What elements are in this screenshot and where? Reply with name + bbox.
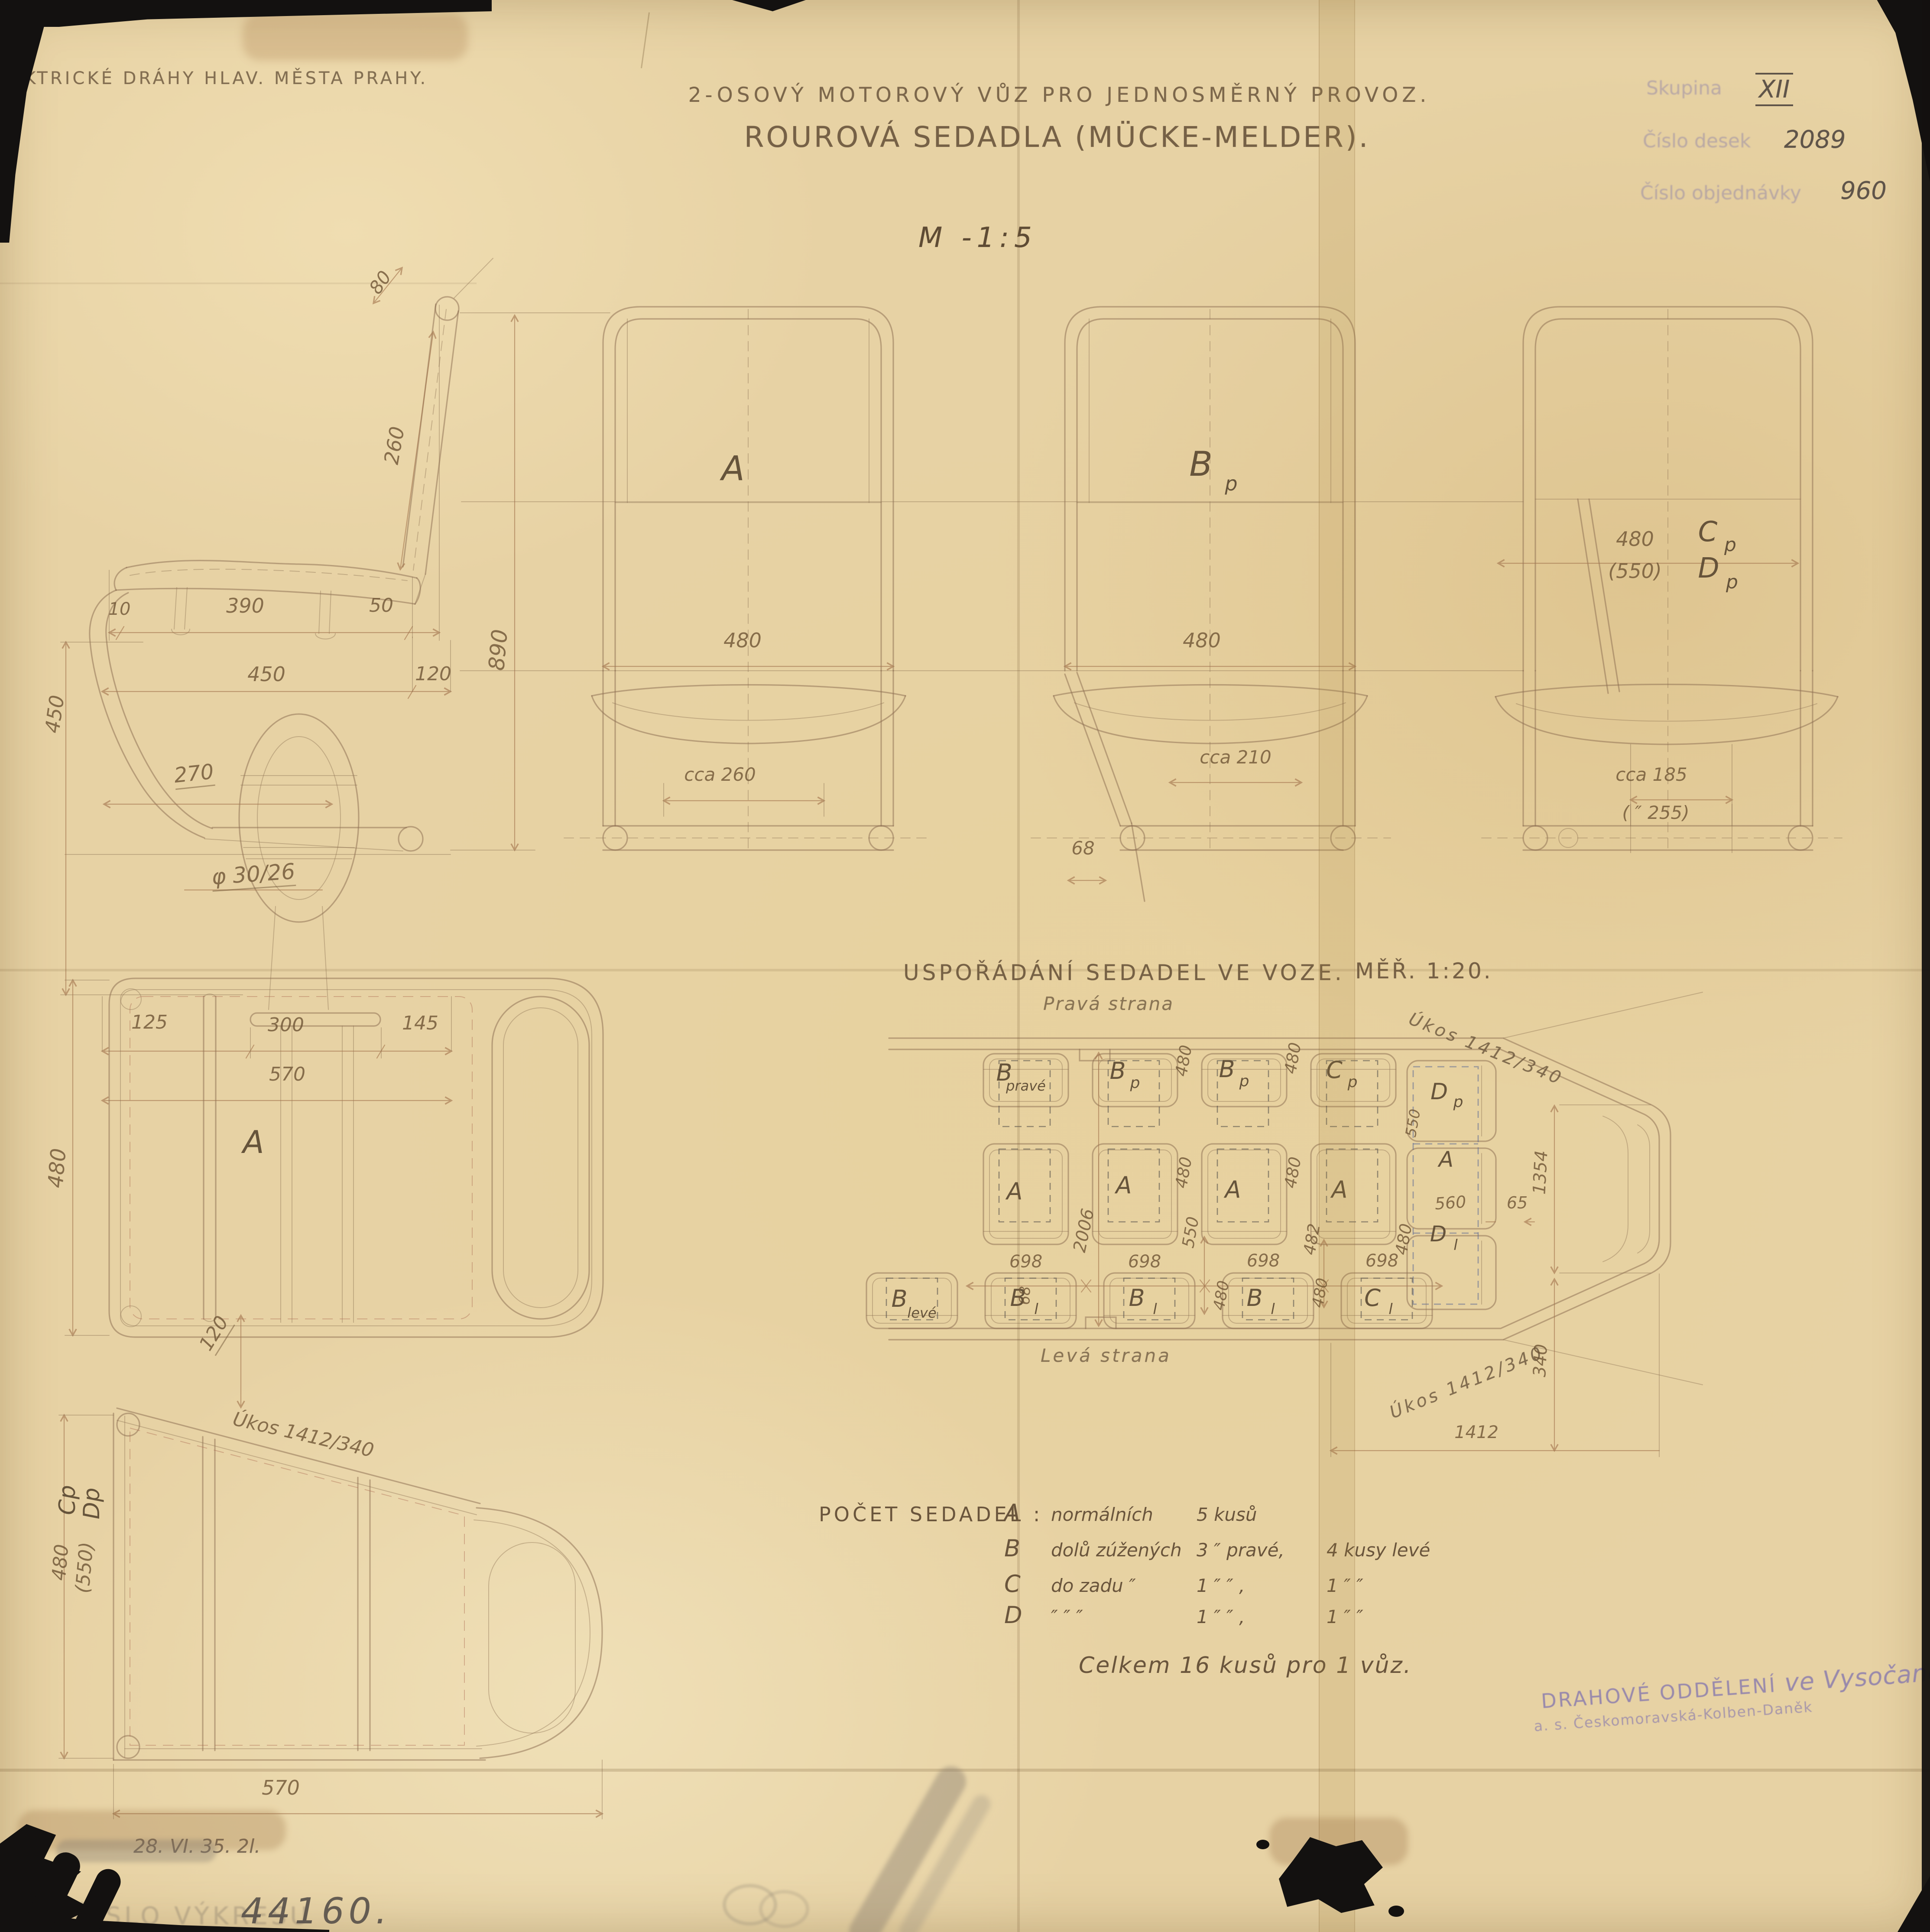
order-number-label: Číslo objednávky [1640, 182, 1801, 204]
front-view-a-label: A [721, 452, 744, 486]
dim-698-4: 698 [1366, 1252, 1398, 1270]
plan-a-label: A [243, 1127, 264, 1158]
dim-255: ( ″ 255) [1622, 804, 1689, 822]
scan-hole-dot-1 [1388, 1906, 1404, 1917]
row-extra: 1 ″ ″ [1327, 1575, 1363, 1596]
row-desc: normálních [1051, 1504, 1197, 1525]
dim-698-1: 698 [1009, 1253, 1042, 1270]
seat-a-4: A [1332, 1178, 1348, 1201]
dim-890: 890 [486, 628, 511, 671]
dim-450-h: 450 [247, 664, 285, 684]
seat-cl-sub: l [1388, 1302, 1392, 1317]
seat-count-row: D″ ″ ″1 ″ ″ ,1 ″ ″ [1004, 1601, 1363, 1629]
row-count: 5 kusů [1197, 1504, 1327, 1525]
dim-270: 270 [173, 761, 215, 790]
seat-count-block: POČET SEDADEL : Anormálních5 kusů Bdolů … [819, 1496, 1469, 1695]
seat-bp-2: B [1219, 1058, 1235, 1081]
right-side-label: Pravá strana [1043, 993, 1174, 1014]
row-desc: dolů zúžených [1051, 1539, 1197, 1561]
dim-550-end: 550 [1404, 1108, 1423, 1138]
front-view-b-label: B [1189, 448, 1213, 481]
dim-480-arr3: 480 [1173, 1156, 1194, 1189]
dim-68-arr: 68 [1017, 1286, 1032, 1305]
plan-dp-label: Dp [81, 1487, 103, 1519]
dim-550-arr: 550 [1180, 1215, 1201, 1249]
dim-1354: 1354 [1531, 1150, 1550, 1195]
seat-a-2: A [1116, 1174, 1132, 1197]
group-label: Skupina [1646, 77, 1722, 99]
front-view-c-label: C [1698, 518, 1718, 546]
seat-cp: C [1326, 1059, 1343, 1082]
group-value: XII [1755, 73, 1793, 106]
dim-cca210: cca 210 [1200, 748, 1271, 766]
arrangement-scale: MĚŘ. 1:20. [1355, 958, 1493, 984]
dim-480-plan: 480 [45, 1147, 69, 1188]
seat-b-prave-sub: pravé [1006, 1079, 1046, 1093]
scale-label: M -1:5 [918, 222, 1037, 254]
folder-number-value: 2089 [1784, 126, 1846, 154]
scan-hole-dot-2 [1256, 1840, 1269, 1849]
dim-482: 482 [1301, 1222, 1323, 1256]
seat-a-5: A [1439, 1149, 1453, 1170]
row-type: C [1004, 1570, 1051, 1598]
dim-10: 10 [109, 601, 131, 618]
row-count: 1 ″ ″ , [1197, 1606, 1327, 1627]
drawing-title-line1: 2-OSOVÝ MOTOROVÝ VŮZ PRO JEDNOSMĚRNÝ PRO… [674, 83, 1445, 107]
seat-count-row: Anormálních5 kusů [1004, 1499, 1327, 1526]
dim-68: 68 [1071, 839, 1094, 857]
seat-dl-sub: l [1453, 1238, 1457, 1253]
drawing-number: 44160. [241, 1891, 391, 1932]
seat-bl-3: B [1246, 1286, 1262, 1310]
row-type: D [1004, 1601, 1051, 1629]
drawing-title-line2: ROUROVÁ SEDADLA (MÜCKE-MELDER). [710, 120, 1404, 154]
folder-number-label: Číslo desek [1643, 130, 1751, 152]
dim-480-arr2: 480 [1282, 1041, 1304, 1075]
dim-480-trap: 480 [49, 1543, 71, 1581]
dim-120: 120 [415, 665, 451, 684]
seat-count-row: Cdo zadu ″1 ″ ″ ,1 ″ ″ [1004, 1570, 1363, 1598]
dim-550-trap: (550) [73, 1541, 97, 1594]
seat-bp-2-sub: p [1239, 1074, 1249, 1089]
dim-65: 65 [1507, 1195, 1528, 1211]
seat-bl-1-sub: l [1034, 1302, 1038, 1317]
seat-dl: D [1430, 1223, 1447, 1245]
row-desc: do zadu ″ [1051, 1575, 1197, 1596]
plan-cp-label: Cp [56, 1485, 79, 1515]
dim-cca185: cca 185 [1615, 766, 1687, 784]
seat-bl-3-sub: l [1271, 1302, 1275, 1317]
seat-cl: C [1364, 1286, 1381, 1310]
dim-570-trap: 570 [262, 1778, 300, 1798]
front-view-b-sub: p [1225, 474, 1237, 494]
dim-300: 300 [268, 1016, 304, 1035]
dim-550-d: (550) [1608, 561, 1662, 581]
seat-a-1: A [1007, 1180, 1023, 1203]
row-extra: 1 ″ ″ [1327, 1606, 1363, 1627]
dim-145: 145 [402, 1014, 438, 1033]
dim-480-c: 480 [1616, 529, 1654, 549]
dim-480-arr1: 480 [1173, 1044, 1194, 1078]
dim-480-b: 480 [1183, 630, 1221, 650]
dim-125: 125 [131, 1013, 168, 1032]
seat-count-total: Celkem 16 kusů pro 1 vůz. [1079, 1653, 1412, 1679]
seat-a-3: A [1225, 1178, 1241, 1201]
row-type: B [1004, 1535, 1051, 1562]
dim-570: 570 [269, 1065, 305, 1084]
row-count: 3 ″ pravé, [1197, 1539, 1327, 1561]
dim-cca260: cca 260 [684, 766, 756, 784]
seat-b-leve: B [891, 1287, 907, 1311]
seat-b-leve-sub: levé [907, 1306, 936, 1320]
row-count: 1 ″ ″ , [1197, 1575, 1327, 1596]
seat-bp-1-sub: p [1130, 1075, 1140, 1091]
dim-340: 340 [1531, 1344, 1550, 1377]
row-type: A [1004, 1499, 1051, 1526]
company-name: EKTRICKÉ DRÁHY HLAV. MĚSTA PRAHY. [11, 68, 428, 88]
approval-date: 28. VI. 35. 2l. [133, 1835, 260, 1857]
dim-480-arr4: 480 [1282, 1156, 1304, 1189]
dim-698-3: 698 [1247, 1252, 1280, 1270]
dim-698-2: 698 [1128, 1253, 1161, 1270]
front-view-d-label: D [1698, 555, 1719, 582]
left-side-label: Levá strana [1041, 1345, 1171, 1366]
front-view-d-sub: p [1726, 573, 1738, 592]
seat-bp-1: B [1109, 1059, 1126, 1083]
front-view-c-sub: p [1724, 536, 1736, 555]
seat-dp: D [1430, 1081, 1448, 1103]
seat-count-row: Bdolů zúžených3 ″ pravé,4 kusy levé [1004, 1535, 1430, 1562]
dim-50: 50 [369, 596, 393, 615]
arrangement-title: USPOŘÁDÁNÍ SEDADEL VE VOZE. [903, 960, 1345, 985]
dim-560: 560 [1434, 1194, 1466, 1212]
seat-cp-sub: p [1348, 1075, 1358, 1090]
scan-edge-right-strip [1922, 0, 1930, 1932]
row-desc: ″ ″ ″ [1051, 1606, 1197, 1627]
row-extra: 4 kusy levé [1327, 1539, 1430, 1561]
dim-450-v: 450 [42, 694, 67, 734]
dim-480-a: 480 [723, 630, 762, 650]
order-number-value: 960 [1840, 177, 1887, 205]
dim-480-arr5: 480 [1393, 1222, 1414, 1256]
seat-bl-2: B [1129, 1286, 1145, 1310]
seat-dp-sub: p [1453, 1094, 1463, 1110]
dim-260: 260 [381, 425, 408, 466]
dim-1412: 1412 [1454, 1424, 1499, 1441]
scanned-technical-drawing: EKTRICKÉ DRÁHY HLAV. MĚSTA PRAHY. 2-OSOV… [0, 0, 1930, 1932]
dim-390: 390 [226, 596, 264, 616]
seat-bl-2-sub: l [1153, 1302, 1157, 1317]
